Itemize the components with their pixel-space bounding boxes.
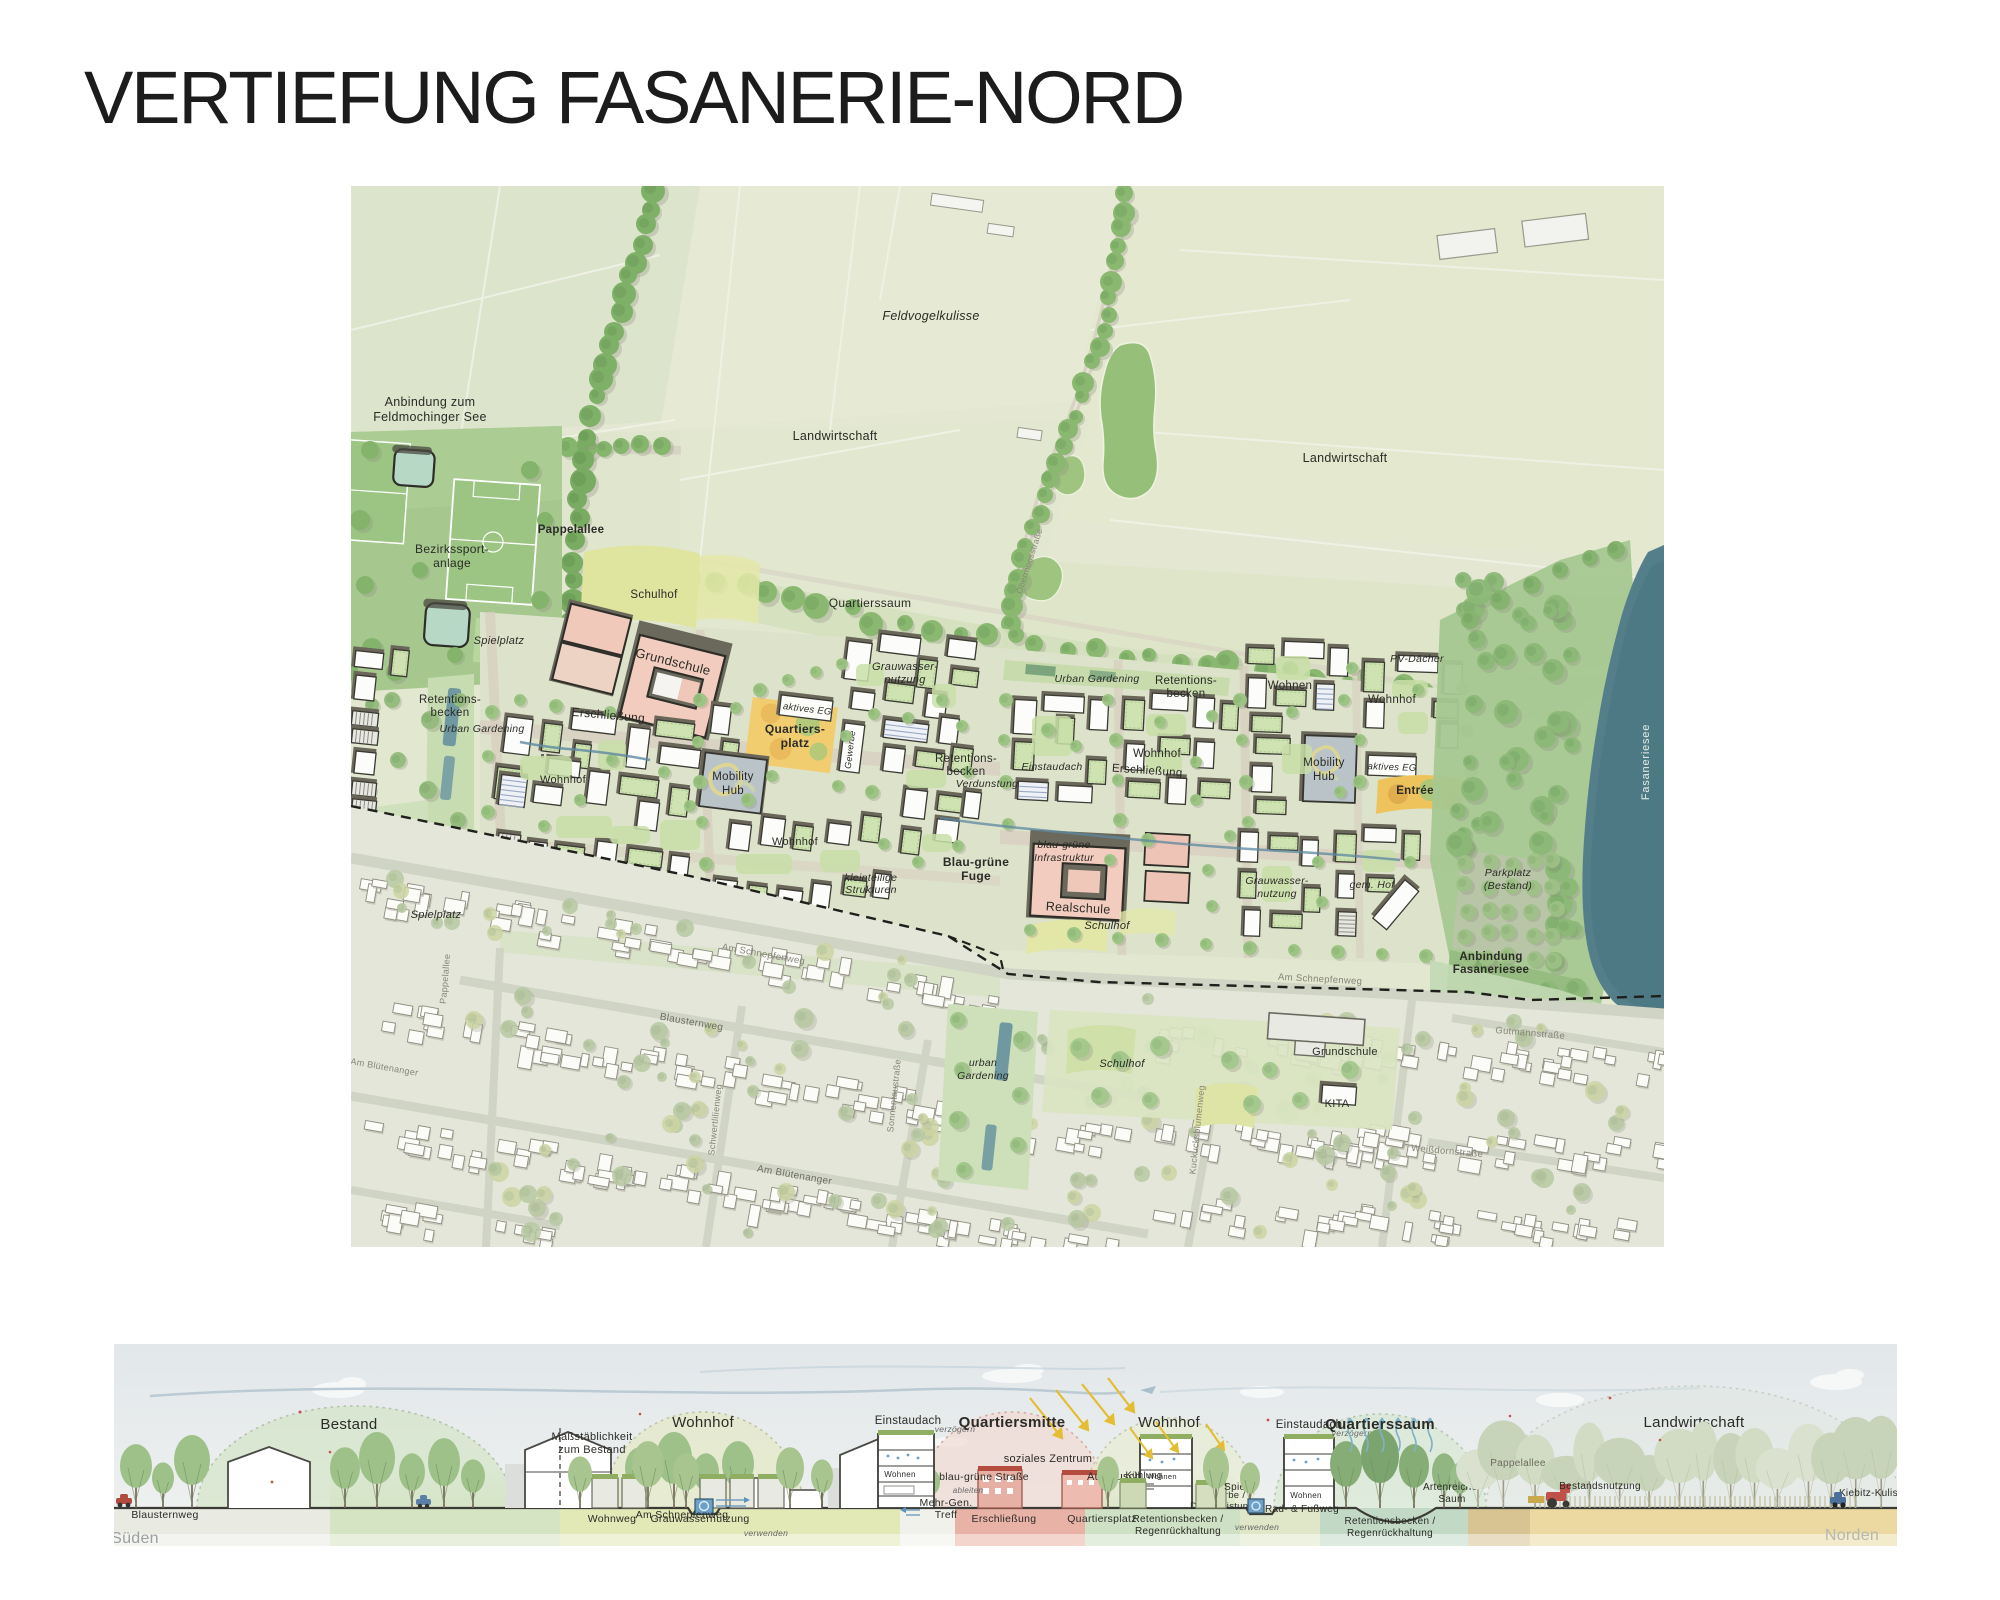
svg-text:Wohnen: Wohnen [884,1470,915,1479]
svg-text:Bestandsnutzung: Bestandsnutzung [1559,1481,1641,1492]
svg-text:Strukturen: Strukturen [845,884,896,896]
svg-text:Grauwasser-: Grauwasser- [1245,875,1308,887]
svg-text:Am Schnepfenweg: Am Schnepfenweg [636,1509,729,1521]
svg-text:nutzung: nutzung [1257,888,1296,900]
svg-text:Fuge: Fuge [961,869,991,883]
svg-text:Einstaudach: Einstaudach [1021,761,1082,773]
svg-text:Urban Gardening: Urban Gardening [439,723,524,735]
svg-text:Quartiers-: Quartiers- [765,722,825,736]
svg-text:becken: becken [947,766,986,778]
svg-text:gem. Hof: gem. Hof [1350,879,1396,891]
svg-text:(Bestand): (Bestand) [1484,880,1532,892]
svg-text:Spielplatz: Spielplatz [474,635,525,647]
svg-text:Wohnweg: Wohnweg [588,1513,637,1525]
svg-text:KITA: KITA [1325,1098,1350,1110]
svg-text:Süden: Süden [114,1530,159,1547]
svg-text:Regenrückhaltung: Regenrückhaltung [1135,1526,1221,1537]
svg-text:Wohnhof: Wohnhof [1368,694,1416,706]
svg-text:Retentions-: Retentions- [1155,675,1217,687]
svg-text:Mobility: Mobility [1303,757,1344,769]
svg-text:Retentionsbecken /: Retentionsbecken / [1344,1516,1435,1527]
svg-text:Fasaneriesee: Fasaneriesee [1640,724,1652,800]
svg-text:Wohnen: Wohnen [1290,1491,1321,1500]
svg-text:aktives EG: aktives EG [1367,761,1416,774]
svg-text:Anbindung: Anbindung [1459,951,1522,963]
svg-text:Mobility: Mobility [712,771,753,783]
svg-text:becken: becken [1167,688,1206,700]
svg-text:Wohnhof: Wohnhof [540,774,587,786]
svg-text:Bezirkssport-: Bezirkssport- [415,542,489,556]
svg-text:Hub: Hub [722,785,744,797]
svg-text:nutzung: nutzung [884,674,926,686]
svg-text:zum Bestand: zum Bestand [558,1444,626,1456]
svg-text:Wohnhof: Wohnhof [1138,1414,1200,1431]
svg-text:Infrastruktur: Infrastruktur [1034,852,1094,864]
svg-text:Schulhof: Schulhof [1099,1058,1145,1070]
svg-text:Pappelallee: Pappelallee [538,524,605,536]
svg-text:Quartierssaum: Quartierssaum [829,596,912,610]
svg-text:anlage: anlage [433,556,471,570]
svg-text:PV-Dächer: PV-Dächer [1390,653,1444,665]
svg-text:Quartiersmitte: Quartiersmitte [959,1414,1066,1431]
svg-text:Grundschule: Grundschule [1312,1046,1378,1058]
svg-text:Mehr-Gen.: Mehr-Gen. [920,1497,973,1509]
svg-text:soziales Zentrum: soziales Zentrum [1004,1453,1093,1465]
svg-text:Wohnhof: Wohnhof [1133,748,1181,760]
svg-text:Spielplatz: Spielplatz [411,909,462,921]
svg-text:blau-grüne Straße: blau-grüne Straße [939,1471,1029,1483]
svg-text:Kiebitz-Kulisse: Kiebitz-Kulisse [1839,1488,1897,1499]
svg-text:Wohnen: Wohnen [1268,680,1312,692]
svg-text:verwenden: verwenden [1235,1522,1279,1532]
svg-text:verwenden: verwenden [744,1528,788,1538]
svg-text:Retentions-: Retentions- [419,694,481,706]
svg-text:becken: becken [431,707,470,719]
svg-text:Pappelallee: Pappelallee [1490,1458,1546,1469]
svg-text:Grauwasser-: Grauwasser- [872,661,938,673]
svg-text:Entrée: Entrée [1396,785,1434,797]
svg-text:ableiten: ableiten [953,1486,984,1495]
svg-text:Saum: Saum [1438,1494,1465,1505]
svg-text:Retentions-: Retentions- [935,753,997,765]
svg-text:Blau-grüne: Blau-grüne [943,855,1009,869]
svg-text:Retentionsbecken /: Retentionsbecken / [1132,1514,1223,1525]
svg-text:Feldmochinger See: Feldmochinger See [373,410,487,424]
svg-text:Gardening: Gardening [957,1070,1009,1082]
svg-text:Maßstäblichkeit: Maßstäblichkeit [552,1431,633,1443]
svg-text:Urban Gardening: Urban Gardening [1054,673,1139,685]
svg-text:platz: platz [781,736,810,750]
svg-text:Schulhof: Schulhof [1084,920,1130,932]
svg-text:Bestand: Bestand [320,1416,377,1433]
svg-text:Treff: Treff [935,1509,958,1521]
svg-text:Hub: Hub [1313,771,1335,783]
svg-text:Fasaneriesee: Fasaneriesee [1453,964,1530,976]
svg-text:Erschließung: Erschließung [972,1513,1037,1525]
svg-text:Rad- & Fußweg: Rad- & Fußweg [1265,1504,1339,1515]
svg-text:Wohnhof: Wohnhof [672,1414,734,1431]
svg-text:blau-grüne: blau-grüne [1037,839,1090,851]
svg-text:Einstaudach: Einstaudach [875,1415,942,1427]
svg-text:Anbindung zum: Anbindung zum [385,395,476,409]
svg-text:Landwirtschaft: Landwirtschaft [1303,451,1388,465]
svg-text:Norden: Norden [1825,1527,1879,1544]
svg-text:Quartierssaum: Quartierssaum [1325,1416,1435,1433]
svg-text:kleinteilige: kleinteilige [845,872,898,884]
svg-text:Regenrückhaltung: Regenrückhaltung [1347,1528,1433,1539]
svg-text:Wohnhof: Wohnhof [772,836,819,848]
svg-text:Parkplatz: Parkplatz [1485,867,1532,879]
svg-text:Schulhof: Schulhof [630,589,678,601]
svg-text:Landwirtschaft: Landwirtschaft [793,429,878,443]
svg-text:Feldvogelkulisse: Feldvogelkulisse [882,309,979,323]
svg-text:Kühlung: Kühlung [1126,1470,1163,1481]
svg-text:urban: urban [969,1057,997,1069]
svg-text:Blausternweg: Blausternweg [131,1509,198,1521]
svg-text:Quartiersplatz: Quartiersplatz [1067,1513,1137,1525]
svg-text:Verdunstung: Verdunstung [956,778,1018,790]
